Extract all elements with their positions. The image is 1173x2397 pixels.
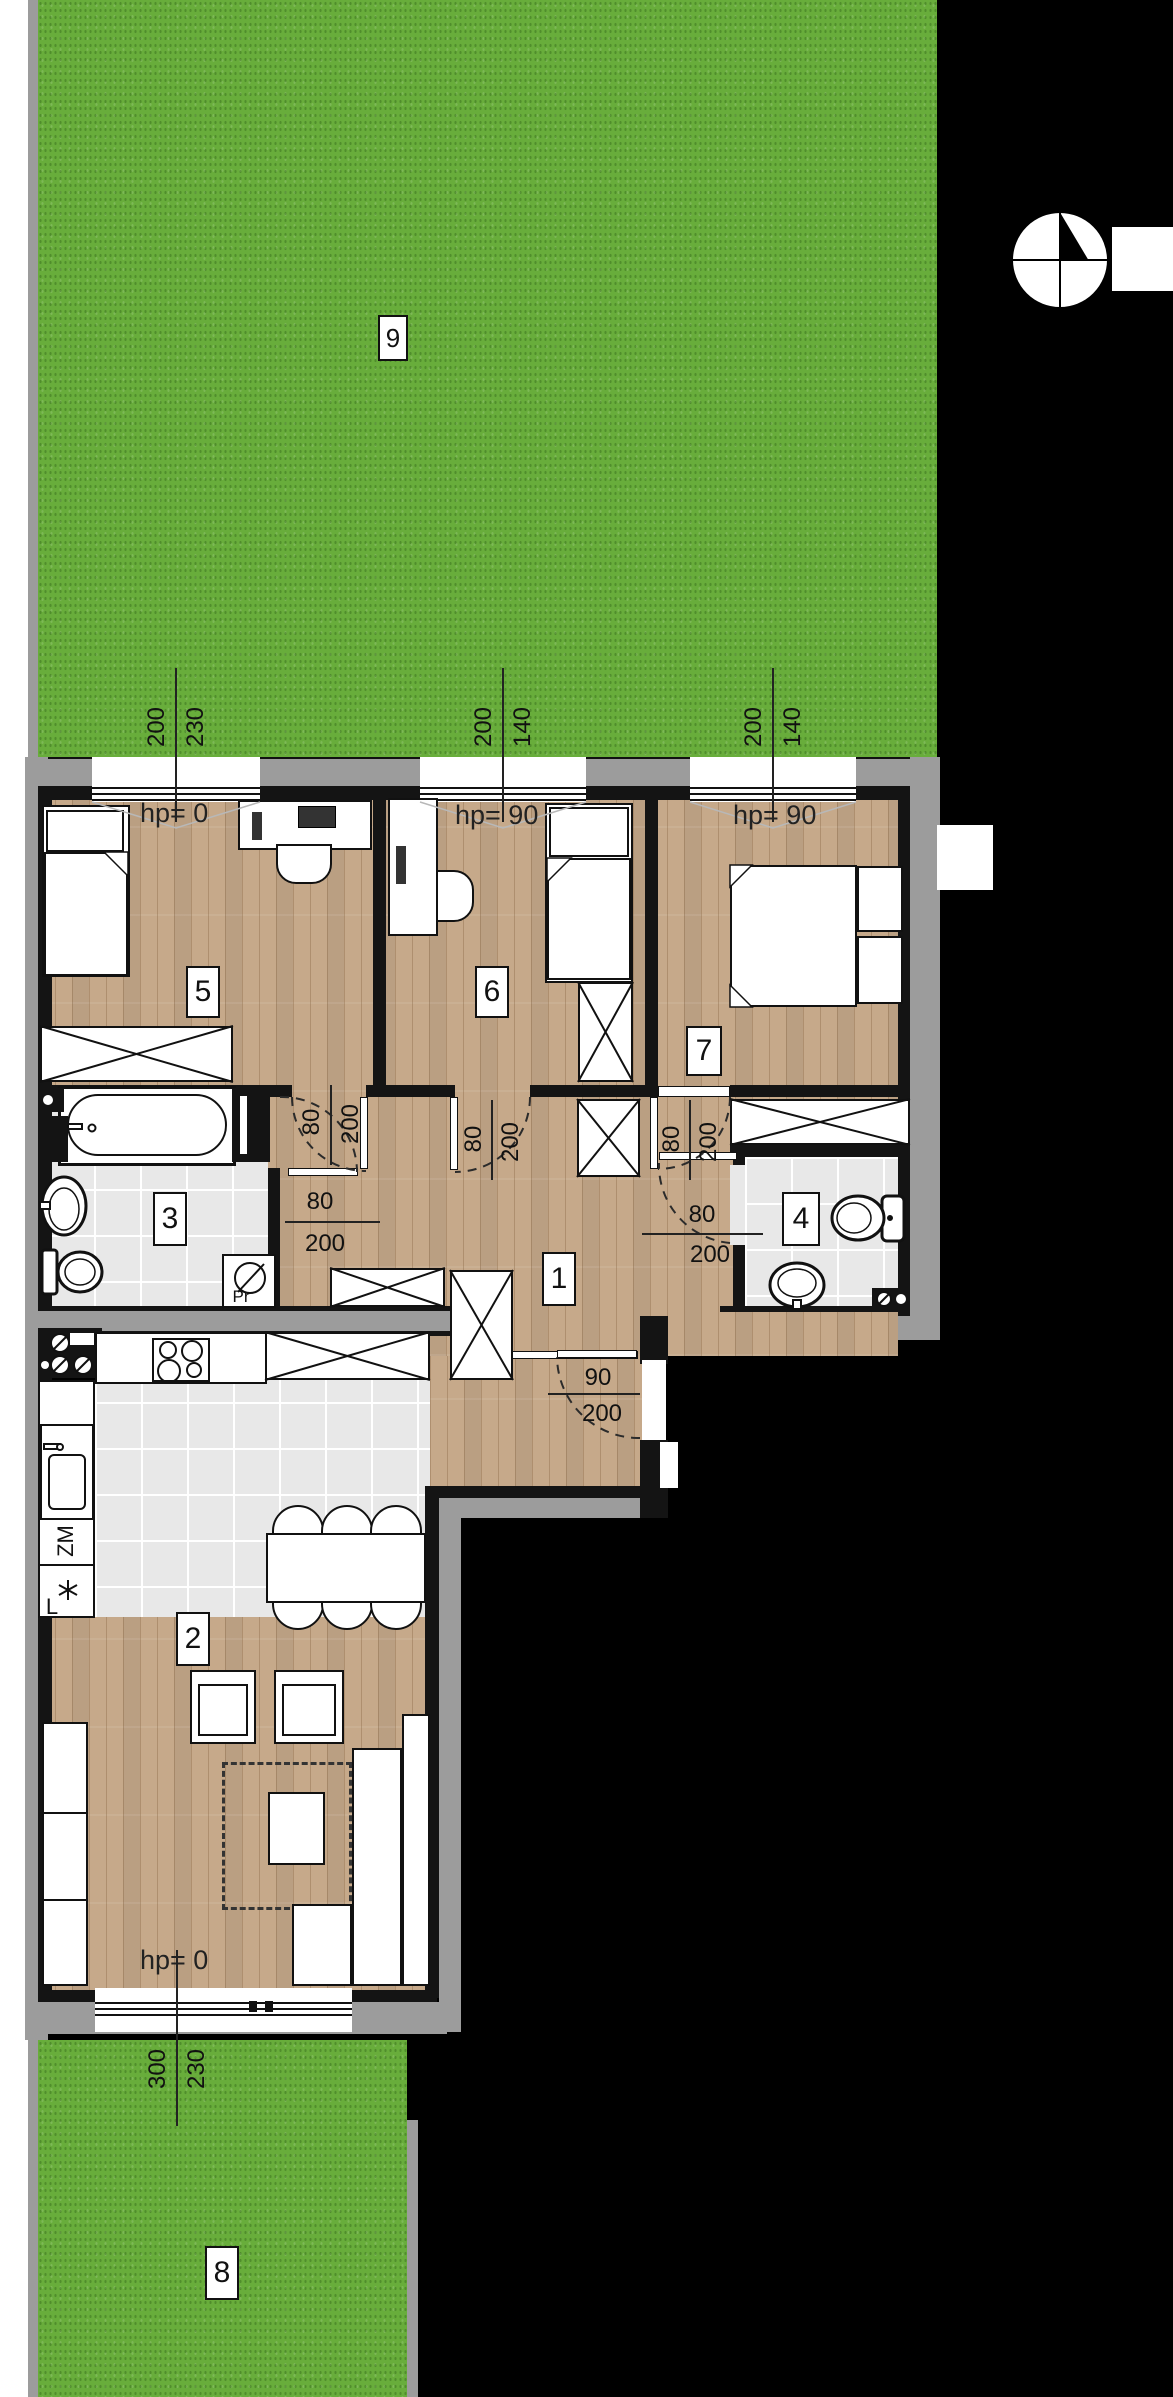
dim-window5-sill: 230 — [184, 687, 208, 767]
legend-block — [1112, 227, 1173, 291]
bookshelf — [42, 1722, 88, 1986]
room-label-7: 7 — [686, 1026, 722, 1076]
exterior-wall-east-upper — [910, 757, 940, 1340]
dim-door-bathroom-w: 80 — [290, 1190, 350, 1214]
stove — [152, 1338, 210, 1382]
wall-hall-north-c — [530, 1085, 658, 1097]
dim-door-wc-w: 80 — [672, 1203, 732, 1227]
dim-window7-sill: 140 — [781, 687, 805, 767]
sofa-seat — [352, 1748, 402, 1986]
utility-meters-wc — [872, 1288, 910, 1310]
sofa-back — [402, 1714, 430, 1986]
wardrobe-bedroom5 — [40, 1026, 233, 1082]
exterior-wall-living-east — [439, 1486, 461, 2032]
dim-door-bedroom7-line — [689, 1100, 691, 1180]
bathtub — [58, 1086, 236, 1166]
monitor-bedroom6 — [396, 846, 406, 884]
bathroom-wall-unit-a — [38, 1088, 64, 1112]
dim-door-bedroom7-w: 80 — [660, 1109, 684, 1169]
armchair — [274, 1670, 344, 1744]
room-label-9: 9 — [378, 315, 408, 361]
door-leaf-entrance — [557, 1350, 637, 1358]
stairwell-landing — [660, 1442, 678, 1488]
dim-door-bedroom6-line — [491, 1100, 493, 1180]
desk-chair-bedroom6 — [436, 870, 474, 922]
monitor-bedroom5 — [252, 812, 262, 840]
wardrobe-hall-north — [577, 1099, 640, 1177]
kitchen-sink — [40, 1424, 94, 1520]
window-living-room — [95, 1988, 352, 2032]
coffee-table — [268, 1792, 325, 1865]
washing-machine-label: Pr — [226, 1288, 256, 1305]
hp-label-bedroom6: hp= 90 — [455, 800, 538, 831]
dim-door-bedroom5-h: 200 — [339, 1084, 363, 1164]
wardrobe-hall-west — [330, 1268, 445, 1307]
dim-door-bathroom-line — [285, 1221, 380, 1223]
blanket-bedroom5 — [44, 852, 128, 976]
wall-wc-north — [730, 1145, 910, 1157]
kitchen-tall-cabinet — [265, 1332, 430, 1380]
floor-wc — [745, 1157, 898, 1306]
dining-table — [266, 1533, 426, 1603]
dim-door-wc-h: 200 — [670, 1243, 750, 1267]
wall-bedroom5-6 — [373, 790, 386, 1085]
dim-window6-sill: 140 — [511, 687, 535, 767]
room-label-3: 3 — [153, 1192, 187, 1246]
bathroom-wall-unit-b — [38, 1116, 68, 1162]
door-leaf-bedroom7 — [650, 1097, 658, 1169]
floor-plan: 1 2 3 4 5 6 7 8 9 hp= 0 hp= 90 hp= 90 hp… — [0, 0, 1173, 2397]
door-opening-entrance — [642, 1360, 666, 1440]
dim-door-bedroom7-h: 200 — [697, 1102, 721, 1182]
dim-window7-width: 200 — [742, 687, 766, 767]
nightstand-bedroom7-a — [857, 866, 903, 932]
blanket-bedroom6 — [547, 858, 631, 980]
garden-north — [38, 0, 937, 757]
utility-meters-kitchen — [38, 1328, 102, 1378]
dim-line-window-living — [176, 1950, 178, 2126]
bathroom-cabinet — [232, 1088, 270, 1162]
room-label-4: 4 — [782, 1192, 820, 1246]
wall-entry-east-upper — [640, 1316, 668, 1364]
wardrobe-bedroom6 — [578, 982, 633, 1082]
nightstand-bedroom7-b — [857, 936, 903, 1004]
wall-bedroom6-7 — [645, 790, 658, 1097]
door-leaf-bedroom6 — [450, 1097, 458, 1170]
sofa-chaise — [292, 1904, 352, 1986]
wall-entry-south-line — [430, 1486, 652, 1498]
room-label-1: 1 — [542, 1252, 576, 1306]
hp-label-living: hp= 0 — [140, 1945, 208, 1976]
room-label-8: 8 — [205, 2246, 239, 2300]
page-margin-left — [0, 0, 28, 2397]
dim-window-living-sill: 230 — [185, 2029, 209, 2109]
compass-axis-horizontal — [1012, 259, 1108, 261]
dim-window-living-width: 300 — [146, 2029, 170, 2109]
closet-corridor — [730, 1099, 910, 1145]
exterior-wall-entry-south — [445, 1498, 667, 1518]
garden-south — [38, 2040, 407, 2397]
dim-door-bedroom6-w: 80 — [462, 1109, 486, 1169]
garden-south-boundary — [407, 2120, 418, 2397]
dim-door-entrance-h: 200 — [562, 1402, 642, 1426]
pillow-bedroom5 — [46, 810, 124, 852]
room-label-6: 6 — [475, 966, 509, 1018]
printer-icon — [298, 806, 336, 828]
hp-label-bedroom7: hp= 90 — [733, 800, 816, 831]
dim-door-entrance-w: 90 — [568, 1366, 628, 1390]
room-label-5: 5 — [186, 966, 220, 1018]
dim-line-window5 — [175, 668, 177, 822]
neighbour-terrace — [937, 825, 993, 890]
dishwasher-label: ZM — [55, 1511, 77, 1571]
dim-door-bedroom6-h: 200 — [499, 1102, 523, 1182]
room-label-2: 2 — [176, 1612, 210, 1666]
fridge-label: L — [42, 1596, 62, 1618]
dim-line-window7 — [772, 668, 774, 822]
wall-bedroom7-south — [730, 1085, 910, 1097]
dim-door-bathroom-h: 200 — [285, 1232, 365, 1256]
wall-hall-north-b — [366, 1085, 455, 1097]
door-leaf-bathroom — [288, 1168, 358, 1176]
desk-chair-bedroom5 — [276, 844, 332, 884]
door-opening-bedroom7 — [658, 1086, 730, 1097]
pillow-bedroom6 — [549, 807, 629, 857]
dim-door-bedroom5-w: 80 — [300, 1092, 324, 1152]
wardrobe-hall-south — [450, 1270, 513, 1380]
dim-door-entrance-line — [548, 1393, 640, 1395]
double-bed-bedroom7 — [730, 865, 857, 1007]
dim-door-wc-line — [642, 1233, 763, 1235]
dim-door-bedroom5-line — [330, 1085, 332, 1165]
dim-window5-width: 200 — [145, 687, 169, 767]
dim-line-window6 — [502, 668, 504, 822]
dim-window6-width: 200 — [472, 687, 496, 767]
armchair — [190, 1670, 256, 1744]
